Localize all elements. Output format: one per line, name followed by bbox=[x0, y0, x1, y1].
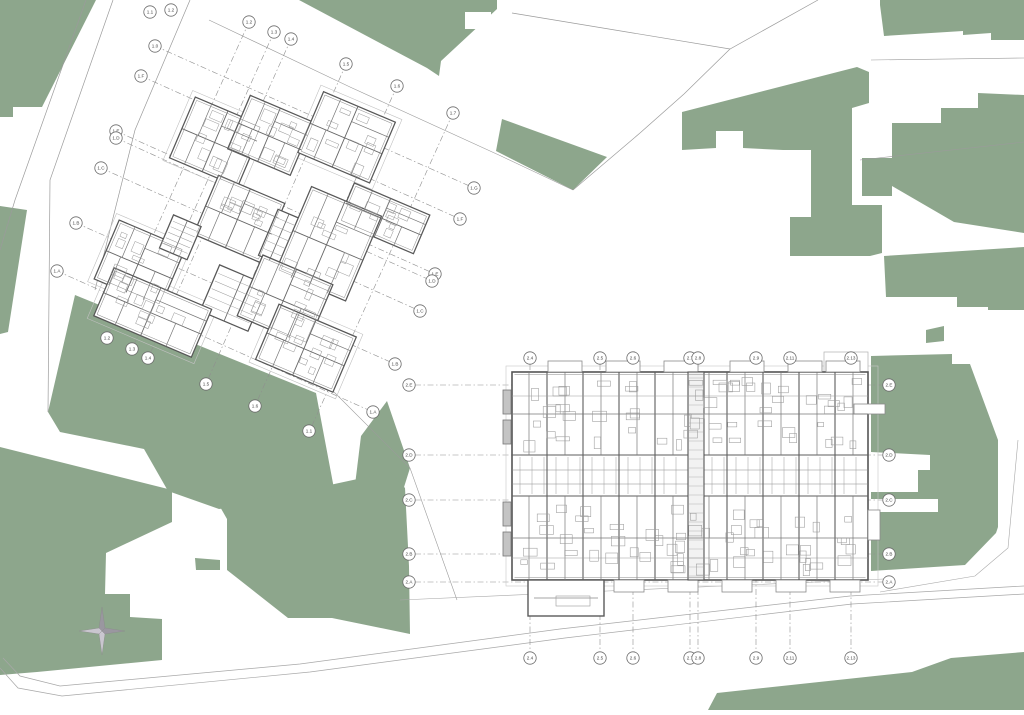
svg-text:2.13: 2.13 bbox=[847, 656, 856, 661]
svg-text:2.E: 2.E bbox=[406, 383, 413, 388]
svg-text:1.6: 1.6 bbox=[252, 404, 259, 409]
svg-text:2.6: 2.6 bbox=[630, 656, 637, 661]
svg-text:2.B: 2.B bbox=[406, 552, 413, 557]
svg-text:2.E: 2.E bbox=[886, 383, 893, 388]
svg-text:1.D: 1.D bbox=[112, 136, 120, 141]
svg-text:1.F: 1.F bbox=[457, 217, 464, 222]
svg-text:1.3: 1.3 bbox=[271, 30, 278, 35]
svg-text:1.B: 1.B bbox=[392, 362, 399, 367]
svg-text:1.5: 1.5 bbox=[343, 62, 350, 67]
svg-text:1.D: 1.D bbox=[428, 279, 436, 284]
svg-text:1.C: 1.C bbox=[416, 309, 424, 314]
svg-text:1.7: 1.7 bbox=[450, 111, 457, 116]
svg-text:1.2: 1.2 bbox=[168, 8, 175, 13]
svg-text:2.5: 2.5 bbox=[597, 656, 604, 661]
svg-text:1.B: 1.B bbox=[73, 221, 80, 226]
svg-text:1.5: 1.5 bbox=[203, 382, 210, 387]
svg-text:1.1: 1.1 bbox=[147, 10, 154, 15]
svg-text:1.C: 1.C bbox=[97, 166, 105, 171]
svg-text:1.2: 1.2 bbox=[104, 336, 111, 341]
svg-text:1.A: 1.A bbox=[370, 410, 378, 415]
svg-text:2.11: 2.11 bbox=[786, 656, 795, 661]
svg-text:2.C: 2.C bbox=[405, 498, 413, 503]
svg-text:1.4: 1.4 bbox=[288, 37, 295, 42]
svg-text:2.4: 2.4 bbox=[527, 656, 534, 661]
svg-text:1.G: 1.G bbox=[470, 186, 478, 191]
svg-text:1.1: 1.1 bbox=[306, 429, 313, 434]
svg-text:2.8: 2.8 bbox=[695, 656, 702, 661]
svg-text:1.4: 1.4 bbox=[145, 356, 152, 361]
svg-text:1.A: 1.A bbox=[54, 269, 62, 274]
svg-text:2.6: 2.6 bbox=[630, 356, 637, 361]
svg-text:2.13: 2.13 bbox=[847, 356, 856, 361]
svg-text:2.A: 2.A bbox=[406, 580, 414, 585]
svg-text:2.9: 2.9 bbox=[753, 656, 760, 661]
svg-text:2.D: 2.D bbox=[405, 453, 413, 458]
svg-text:1.0: 1.0 bbox=[152, 44, 159, 49]
svg-text:2.9: 2.9 bbox=[753, 356, 760, 361]
svg-text:2.8: 2.8 bbox=[695, 356, 702, 361]
svg-text:2.C: 2.C bbox=[885, 498, 893, 503]
svg-text:2.5: 2.5 bbox=[597, 356, 604, 361]
svg-text:1.2: 1.2 bbox=[246, 20, 253, 25]
svg-text:1.F: 1.F bbox=[138, 74, 145, 79]
svg-text:1.3: 1.3 bbox=[129, 347, 136, 352]
svg-text:2.D: 2.D bbox=[885, 453, 893, 458]
svg-text:2.A: 2.A bbox=[886, 580, 894, 585]
svg-text:2.4: 2.4 bbox=[527, 356, 534, 361]
svg-text:1.6: 1.6 bbox=[394, 84, 401, 89]
svg-text:2.B: 2.B bbox=[886, 552, 893, 557]
svg-text:2.11: 2.11 bbox=[786, 356, 795, 361]
